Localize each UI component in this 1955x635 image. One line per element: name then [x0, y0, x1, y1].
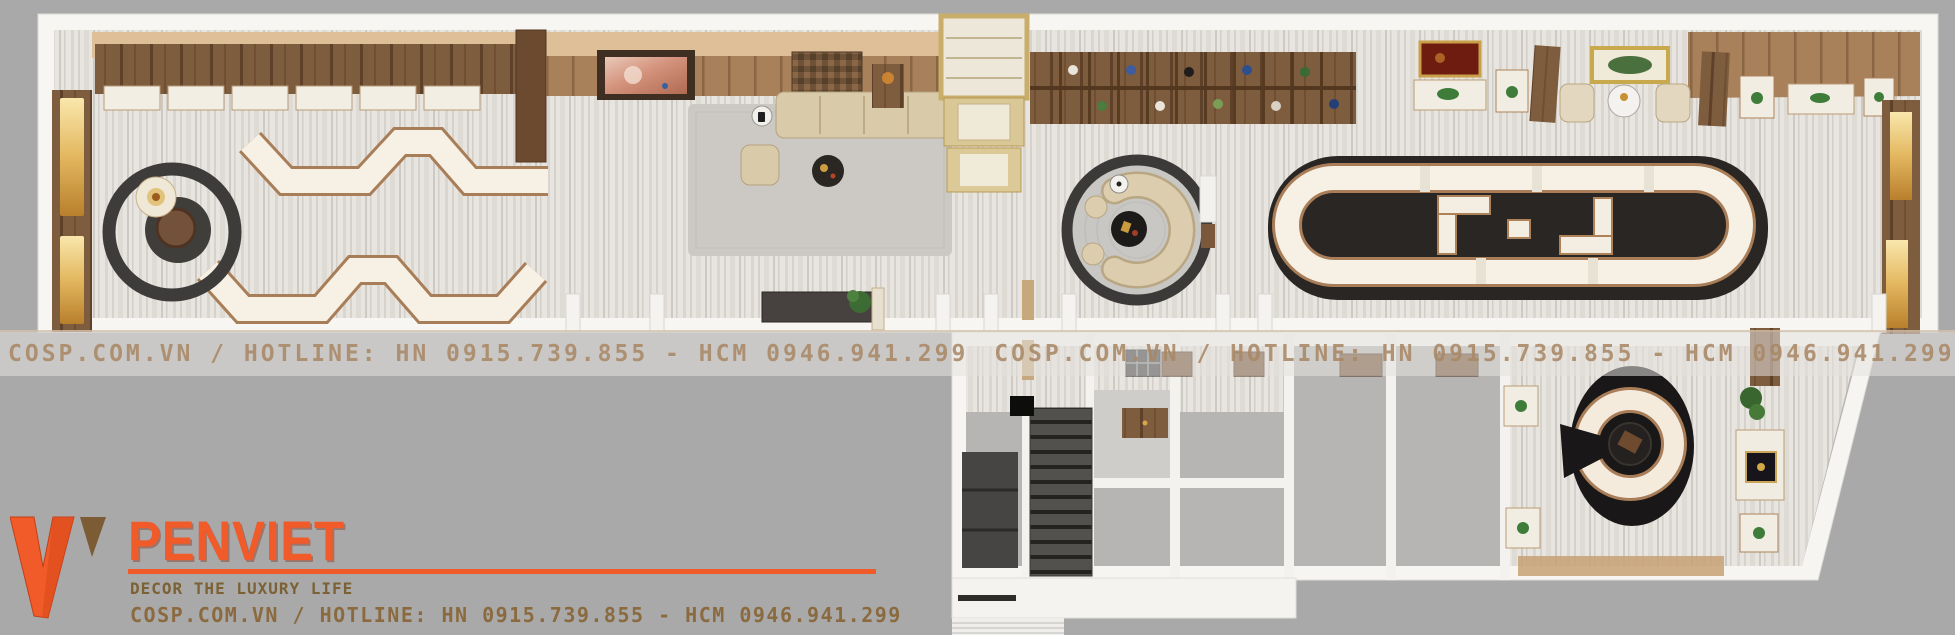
wall-art: [1420, 42, 1480, 76]
armchair: [1560, 84, 1594, 122]
wood-partition: [516, 30, 546, 162]
watermark-band: COSP.COM.VN / HOTLINE: HN 0915.739.855 -…: [0, 330, 1955, 376]
watermark-text: COSP.COM.VN / HOTLINE: HN 0915.739.855 -…: [994, 341, 1954, 367]
lit-display-case: [1886, 240, 1908, 328]
niche-shelving-wall: [1030, 52, 1356, 124]
penviet-logo-mark: [10, 515, 108, 621]
pouf: [1082, 243, 1104, 265]
render-canvas: COSP.COM.VN / HOTLINE: HN 0915.739.855 -…: [0, 0, 1955, 635]
brand-contact: COSP.COM.VN / HOTLINE: HN 0915.739.855 -…: [130, 603, 902, 627]
penviet-logo-block: PENVIET DECOR THE LUXURY LIFE COSP.COM.V…: [8, 512, 908, 632]
door-frame: [1022, 280, 1034, 320]
glass-display-tower: [941, 16, 1027, 192]
armchair: [741, 145, 779, 185]
brand-tagline: DECOR THE LUXURY LIFE: [130, 579, 353, 598]
lit-display-case: [60, 236, 84, 324]
main-showroom: [38, 14, 1938, 334]
mosaic-feature-wall: [792, 52, 862, 98]
brand-name: PENVIET: [128, 508, 345, 573]
pouf: [1085, 196, 1107, 218]
coffee-table: [812, 155, 844, 187]
lit-display-case: [1890, 112, 1912, 200]
entry-steps: [952, 578, 1296, 635]
console-table: [872, 64, 904, 108]
racetrack-display-counters: [1268, 156, 1768, 300]
brand-underline: [128, 569, 876, 574]
office-room: [1094, 390, 1170, 478]
circular-lounge: [1067, 160, 1216, 300]
lit-display-case: [60, 98, 84, 216]
armchair: [1656, 84, 1690, 122]
stair-landing: [962, 452, 1018, 568]
watermark-text: COSP.COM.VN / HOTLINE: HN 0915.739.855 -…: [8, 341, 968, 367]
entrance-mat: [1518, 556, 1724, 576]
